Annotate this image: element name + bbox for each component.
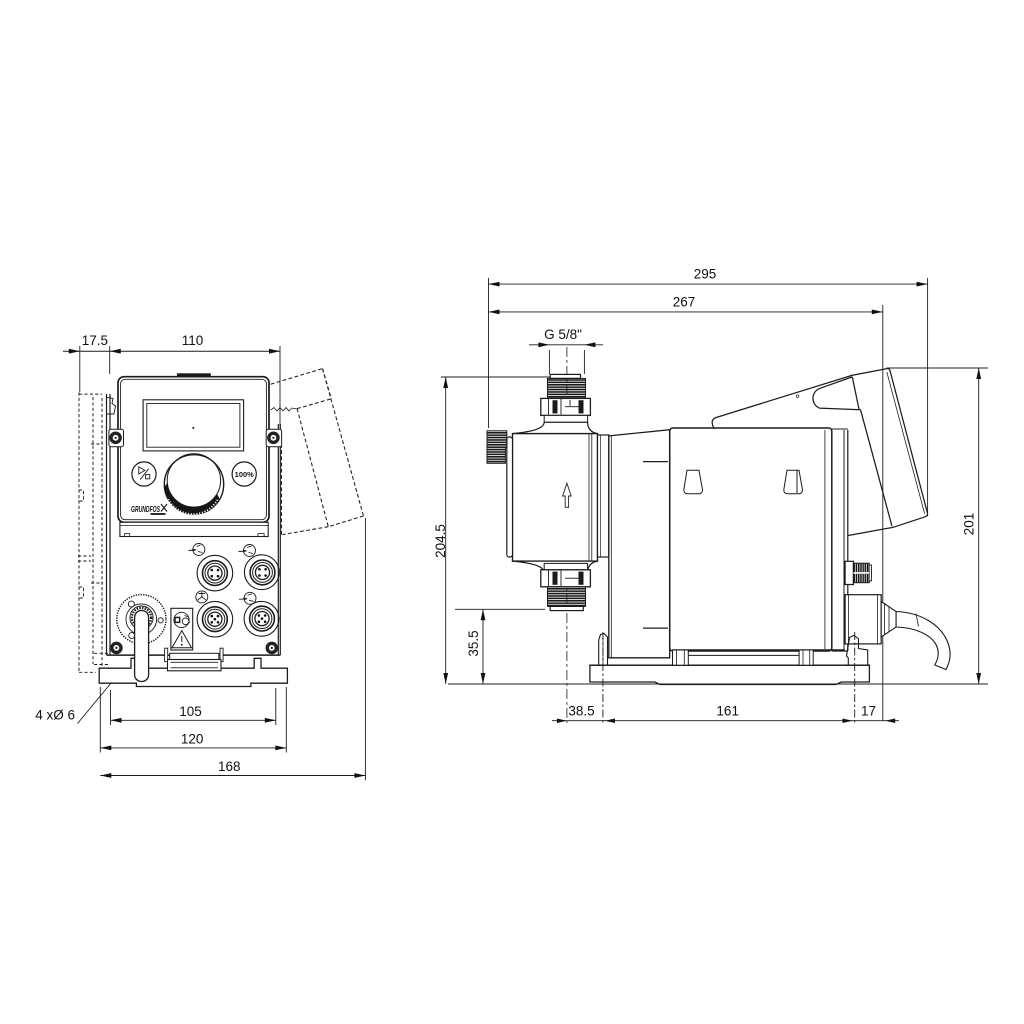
- svg-text:168: 168: [218, 759, 241, 774]
- svg-text:105: 105: [179, 704, 202, 719]
- svg-text:201: 201: [962, 513, 977, 536]
- svg-text:4 xØ 6: 4 xØ 6: [35, 708, 75, 723]
- svg-text:17.5: 17.5: [82, 333, 108, 348]
- svg-text:120: 120: [181, 732, 204, 747]
- svg-text:G 5/8": G 5/8": [544, 327, 582, 342]
- svg-text:38.5: 38.5: [568, 704, 594, 719]
- svg-text:100%: 100%: [235, 470, 255, 479]
- svg-text:204.5: 204.5: [433, 524, 448, 558]
- svg-text:17: 17: [861, 704, 876, 719]
- svg-text:GRUNDFOS: GRUNDFOS: [131, 504, 160, 514]
- svg-text:110: 110: [182, 333, 204, 348]
- svg-text:161: 161: [716, 704, 739, 719]
- svg-text:267: 267: [673, 294, 696, 309]
- svg-text:35.5: 35.5: [466, 630, 481, 656]
- svg-text:295: 295: [694, 267, 717, 282]
